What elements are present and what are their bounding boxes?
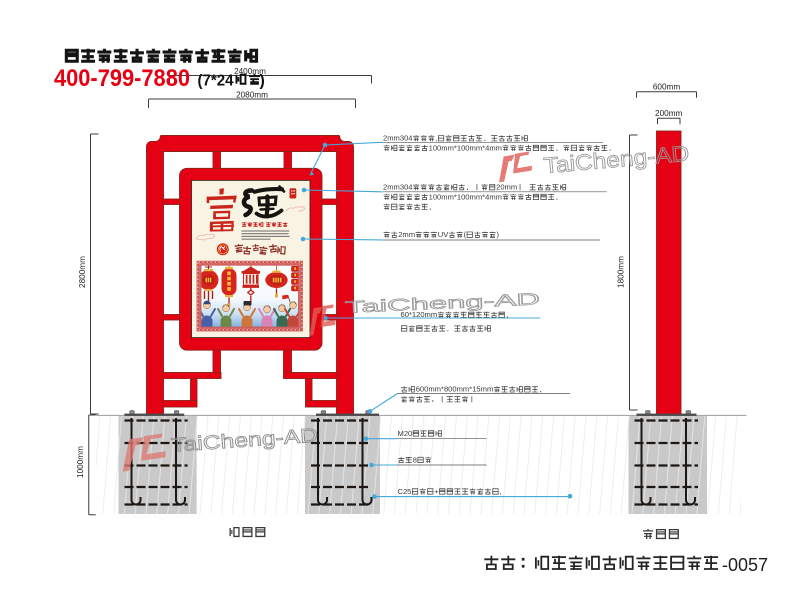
svg-text:): ): [260, 73, 265, 90]
svg-text:400-799-7880: 400-799-7880: [54, 65, 190, 92]
svg-text:1800mm: 1800mm: [617, 256, 626, 288]
svg-text:100mm*100mm*4mm: 100mm*100mm*4mm: [429, 143, 502, 152]
svg-text:2080mm: 2080mm: [236, 91, 268, 100]
svg-text:2mm304: 2mm304: [383, 183, 413, 192]
svg-text:-0057: -0057: [722, 555, 768, 575]
svg-text:1000mm: 1000mm: [76, 446, 85, 478]
svg-text:C25: C25: [398, 487, 412, 496]
svg-text:UV: UV: [438, 230, 450, 239]
svg-text:,: ,: [499, 487, 501, 496]
svg-text:8: 8: [413, 455, 417, 464]
svg-text:2mm304: 2mm304: [383, 134, 413, 143]
svg-text:20mm: 20mm: [496, 183, 517, 192]
svg-text:600mm: 600mm: [653, 83, 680, 92]
svg-text:100mm*100mm*4mm: 100mm*100mm*4mm: [429, 192, 502, 201]
svg-text:M20: M20: [398, 429, 413, 438]
svg-text:,: ,: [435, 134, 437, 143]
svg-text:2mm: 2mm: [398, 230, 415, 239]
svg-text:2800mm: 2800mm: [78, 256, 87, 288]
svg-text:600mm*800mm*15mm: 600mm*800mm*15mm: [416, 385, 494, 394]
svg-text:200mm: 200mm: [655, 109, 682, 118]
svg-text:(7*24: (7*24: [198, 73, 234, 90]
svg-text:+: +: [434, 487, 439, 496]
